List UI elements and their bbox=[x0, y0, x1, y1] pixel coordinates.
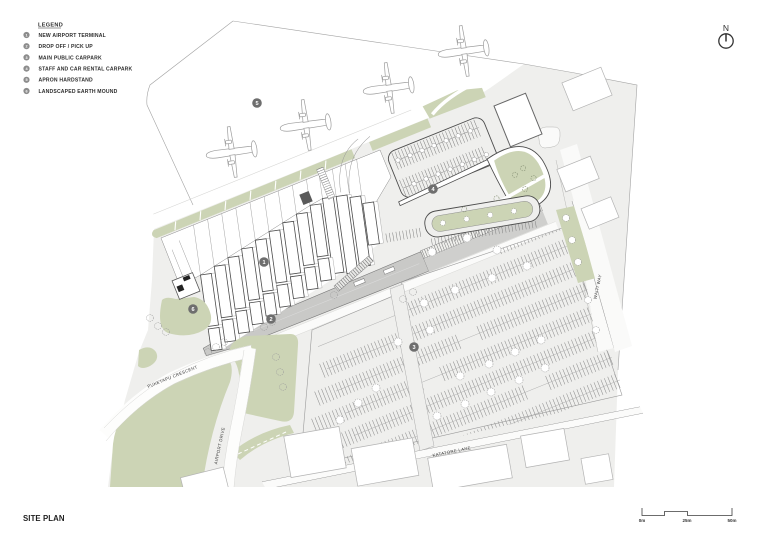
svg-text:SITE PLAN: SITE PLAN bbox=[23, 514, 65, 523]
svg-text:5: 5 bbox=[255, 101, 258, 107]
svg-text:N: N bbox=[723, 23, 729, 33]
svg-text:3: 3 bbox=[25, 56, 27, 60]
svg-text:APRON HARDSTAND: APRON HARDSTAND bbox=[39, 78, 94, 84]
svg-text:LANDSCAPED EARTH MOUND: LANDSCAPED EARTH MOUND bbox=[39, 89, 118, 95]
svg-text:1: 1 bbox=[262, 260, 265, 266]
svg-text:25m: 25m bbox=[682, 518, 691, 523]
svg-text:5: 5 bbox=[25, 78, 27, 82]
svg-text:NEW AIRPORT TERMINAL: NEW AIRPORT TERMINAL bbox=[39, 33, 106, 39]
svg-text:0m: 0m bbox=[639, 518, 646, 523]
svg-text:1: 1 bbox=[25, 33, 27, 37]
svg-text:3: 3 bbox=[412, 345, 415, 351]
svg-text:50m: 50m bbox=[727, 518, 736, 523]
svg-text:2: 2 bbox=[25, 45, 27, 49]
svg-text:6: 6 bbox=[25, 89, 27, 93]
svg-text:LEGEND: LEGEND bbox=[38, 23, 63, 29]
svg-text:MAIN PUBLIC CARPARK: MAIN PUBLIC CARPARK bbox=[39, 55, 102, 61]
svg-text:2: 2 bbox=[269, 317, 272, 323]
svg-text:STAFF AND CAR RENTAL CARPARK: STAFF AND CAR RENTAL CARPARK bbox=[39, 67, 133, 73]
svg-text:6: 6 bbox=[191, 307, 194, 313]
svg-text:DROP OFF / PICK UP: DROP OFF / PICK UP bbox=[39, 44, 94, 50]
